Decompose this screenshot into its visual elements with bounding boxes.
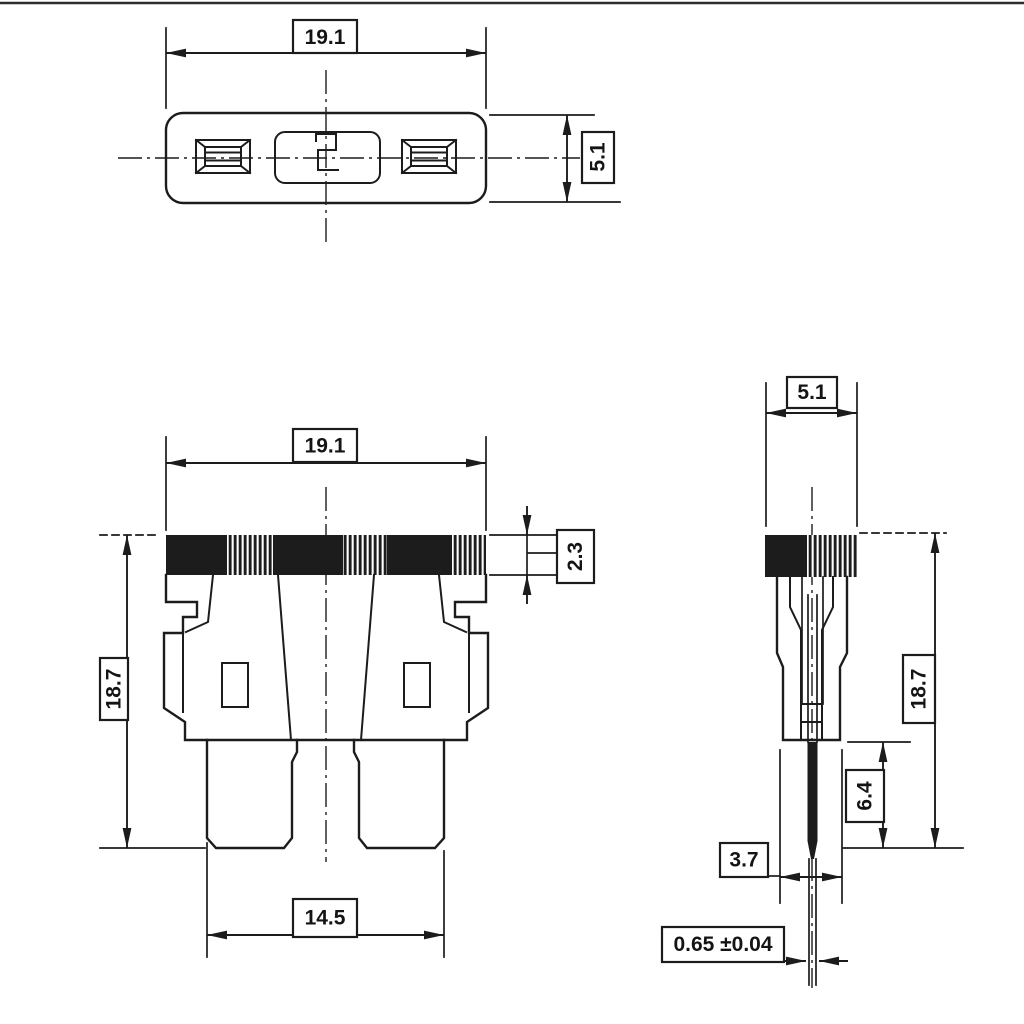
drawing-canvas: 19.1 5.1 19.1	[0, 0, 1024, 1024]
side-view-blade-length-dimension: 6.4	[843, 742, 963, 848]
dim-label-top-width: 5.1	[587, 142, 610, 172]
top-view-length-dimension: 19.1	[166, 20, 486, 108]
front-view-length-dimension: 19.1	[166, 429, 486, 530]
dim-label-top-length: 19.1	[305, 26, 346, 49]
front-view-right-blade	[354, 740, 444, 848]
front-view-right-rib	[439, 575, 469, 712]
dim-label-lower-body-width: 3.7	[729, 849, 758, 872]
fuse-element-glyph	[316, 134, 338, 170]
side-view-cap-band	[765, 535, 858, 577]
side-view-blade-thickness-dimension: 0.65 ±0.04	[662, 927, 848, 962]
front-view: 19.1 18.7	[100, 429, 594, 957]
side-view-lower-body-dimension: 3.7	[720, 750, 842, 903]
front-view-left-rib	[183, 575, 213, 712]
front-view-cap-dimension: 2.3	[490, 506, 594, 604]
dim-label-side-height: 18.7	[908, 669, 931, 710]
front-view-left-window	[222, 663, 248, 707]
top-view-left-terminal-slot	[196, 140, 250, 173]
dim-label-front-length: 19.1	[305, 435, 346, 458]
dim-label-blade-thickness: 0.65 ±0.04	[673, 933, 772, 956]
side-view: 5.1 3.7	[662, 377, 963, 988]
dim-label-terminal-span: 14.5	[305, 907, 346, 930]
front-view-height-dimension: 18.7	[100, 535, 205, 848]
dim-label-side-width: 5.1	[797, 381, 827, 404]
top-view-center-window	[275, 132, 380, 183]
dim-label-cap-height: 2.3	[564, 542, 587, 571]
top-view: 19.1 5.1	[118, 20, 620, 243]
dim-label-blade-length: 6.4	[854, 781, 877, 811]
top-view-right-terminal-slot	[402, 140, 456, 173]
dim-label-front-height: 18.7	[103, 669, 126, 710]
front-view-left-blade	[207, 740, 297, 848]
fuse-technical-drawing: 19.1 5.1 19.1	[0, 0, 1024, 1024]
front-view-right-window	[404, 663, 430, 707]
